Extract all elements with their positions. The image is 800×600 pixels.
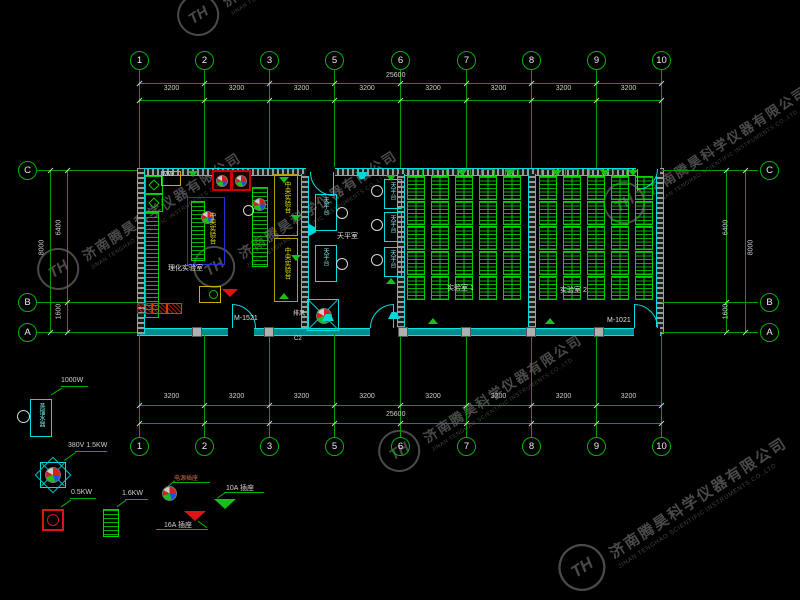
dim-label-top: 3200 <box>485 85 513 92</box>
bench-vertical-label: 中央实验台 <box>206 212 216 245</box>
dim-cb-left: 6400 <box>56 216 63 240</box>
dim-label-bottom: 3200 <box>419 393 447 400</box>
legend-distiller-knob <box>17 410 30 423</box>
leader-line <box>61 500 71 508</box>
axis-bubble-top-1: 1 <box>130 51 149 70</box>
student-bench-segment <box>431 176 449 200</box>
watermark-text: 济南腾昊科学仪器有限公司JINAN TENGHAO SCIENTIFIC INS… <box>604 430 796 570</box>
door-prep-top-arc <box>310 172 334 196</box>
dim-label-bottom: 3200 <box>615 393 643 400</box>
axis-bubble-bottom-3: 3 <box>260 437 279 456</box>
door-lab-bottom-leaf <box>232 304 233 328</box>
student-bench-segment <box>635 251 653 275</box>
legend-heater-symbol <box>103 509 119 537</box>
dim-label-bottom: 3200 <box>288 393 316 400</box>
dim-total-top: 25600 <box>386 72 405 79</box>
axis-bubble-left-A: A <box>18 323 37 342</box>
room-label-classroom1: 实验室 1 <box>447 283 474 293</box>
door-classroom2-bottom-arc <box>634 304 658 328</box>
legend-pump-symbol <box>42 509 64 531</box>
fan-wheel-icon <box>216 175 228 187</box>
axis-bubble-top-5: 5 <box>325 51 344 70</box>
axis-bubble-bottom-6: 6 <box>391 437 410 456</box>
wall-anchor <box>264 327 274 337</box>
exhaust-fan-box <box>307 299 339 331</box>
student-bench-segment <box>479 276 497 300</box>
leader-line <box>198 521 208 528</box>
leader-line <box>217 492 226 499</box>
stool <box>336 207 348 219</box>
student-bench-segment <box>503 251 521 275</box>
leader-line <box>64 452 76 461</box>
student-bench-segment <box>635 201 653 225</box>
door-tag-m1521: M-1521 <box>234 315 258 322</box>
lab-fume-fan <box>212 170 232 191</box>
axis-bubble-left-C: C <box>18 161 37 180</box>
legend-exhaust-fan-power: 380V 1.5KW <box>68 442 107 449</box>
watermark-en: JINAN TENGHAO SCIENTIFIC INSTRUMENTS CO.… <box>431 347 590 453</box>
student-bench-segment <box>539 251 557 275</box>
door-gap <box>228 327 254 336</box>
stool <box>243 205 254 216</box>
legend-10a-socket-symbol <box>214 499 236 509</box>
student-bench-segment <box>563 201 581 225</box>
leader-line <box>61 386 88 387</box>
student-bench-segment <box>587 276 605 300</box>
dim-line-seg-left <box>67 170 68 332</box>
room-label-lab: 理化实验室 <box>168 263 203 273</box>
bench-vertical-label: 天平台 <box>388 250 397 268</box>
student-bench-segment <box>587 176 605 200</box>
student-bench-segment <box>407 176 425 200</box>
cab-glyph <box>148 197 159 208</box>
company-logo-icon: TH <box>169 0 227 44</box>
lab-fume-fan <box>231 170 251 191</box>
dim-label-bottom: 3200 <box>158 393 186 400</box>
watermark-cn: 济南腾昊科学仪器有限公司 <box>644 81 800 199</box>
dim-label-bottom: 3200 <box>485 393 513 400</box>
lab-equipment-cart <box>199 286 221 303</box>
axis-bubble-left-B: B <box>18 293 37 312</box>
student-bench-segment <box>407 201 425 225</box>
student-bench-segment <box>611 251 629 275</box>
dim-line-total-left <box>50 170 51 332</box>
fan-wheel-icon <box>253 198 266 211</box>
socket-triangle <box>279 293 289 299</box>
watermark-text: 济南腾昊科学仪器有限公司JINAN TENGHAO SCIENTIFIC INS… <box>218 0 389 17</box>
door-prep-top-leaf <box>333 172 334 196</box>
axis-bubble-right-B: B <box>760 293 779 312</box>
machine-dial <box>209 290 218 299</box>
student-bench-segment <box>611 201 629 225</box>
legend-16a-socket-label: 16A 插座 <box>164 520 192 530</box>
student-bench-segment <box>503 201 521 225</box>
equipment-box <box>137 303 152 314</box>
axis-bubble-bottom-5: 5 <box>325 437 344 456</box>
dim-cb-right: 6400 <box>723 216 730 240</box>
axis-bubble-top-2: 2 <box>195 51 214 70</box>
watermark-cn: 济南腾昊科学仪器有限公司 <box>604 430 791 562</box>
axis-bubble-top-10: 10 <box>652 51 671 70</box>
axis-bubble-top-3: 3 <box>260 51 279 70</box>
student-bench-segment <box>503 276 521 300</box>
leader-line <box>172 482 210 483</box>
hood-tag-mw: MW <box>163 172 174 178</box>
socket-triangle <box>545 318 555 324</box>
exhaust-fan-tag: 排风 <box>293 308 305 317</box>
room-label-prep: 天平室 <box>337 231 358 241</box>
dim-label-top: 3200 <box>550 85 578 92</box>
student-bench-segment <box>611 176 629 200</box>
legend-power-socket-symbol <box>162 486 177 501</box>
stool <box>336 258 348 270</box>
wall-anchor <box>398 327 408 337</box>
axis-bubble-bottom-8: 8 <box>522 437 541 456</box>
student-bench-segment <box>563 251 581 275</box>
student-bench-segment <box>479 201 497 225</box>
dim-total-bottom: 25600 <box>386 411 405 418</box>
legend-pump-power: 0.5KW <box>71 489 92 496</box>
socket-triangle <box>505 170 515 176</box>
axis-bubble-top-8: 8 <box>522 51 541 70</box>
legend-power-socket-label: 电源插座 <box>174 473 198 482</box>
wall-anchor <box>461 327 471 337</box>
axis-bubble-bottom-10: 10 <box>652 437 671 456</box>
grid-line-horizontal <box>662 302 758 303</box>
bench-vertical-label: 天平台 <box>321 197 330 215</box>
student-bench-segment <box>407 226 425 250</box>
socket-triangle <box>552 170 562 176</box>
student-bench-segment <box>455 176 473 200</box>
wall-anchor <box>192 327 202 337</box>
lab-central-bench-top <box>191 201 205 261</box>
wall-anchor <box>594 327 604 337</box>
window-tag-c2: C2 <box>294 336 302 342</box>
watermark-cn: 济南腾昊科学仪器有限公司 <box>419 329 586 447</box>
student-bench-segment <box>407 276 425 300</box>
axis-bubble-bottom-2: 2 <box>195 437 214 456</box>
watermark-en: JINAN TENGHAO SCIENTIFIC INSTRUMENTS CO.… <box>617 451 795 570</box>
student-bench-segment <box>539 176 557 200</box>
dim-total-right: 8000 <box>748 236 755 260</box>
student-bench-segment <box>455 201 473 225</box>
student-bench-segment <box>455 251 473 275</box>
socket-triangle <box>457 170 467 176</box>
socket-triangle <box>291 215 301 221</box>
door-tag-m1021: M-1021 <box>607 317 631 324</box>
student-bench-segment <box>503 176 521 200</box>
bench-vertical-label: 中央实验台 <box>281 181 291 214</box>
bench-vertical-label: 天平台 <box>388 182 397 200</box>
stool <box>371 219 383 231</box>
door-classroom2-top-arc <box>637 169 658 190</box>
door-classroom2-top <box>637 169 658 190</box>
dim-label-top: 3200 <box>288 85 316 92</box>
grid-line-horizontal <box>36 302 137 303</box>
equipment-box <box>152 303 167 314</box>
company-watermark: TH济南腾昊科学仪器有限公司JINAN TENGHAO SCIENTIFIC I… <box>548 415 796 600</box>
student-bench-segment <box>635 226 653 250</box>
door-classroom2-bottom-leaf <box>634 304 635 328</box>
dim-label-top: 3200 <box>158 85 186 92</box>
socket-triangle <box>386 278 396 284</box>
axis-bubble-right-A: A <box>760 323 779 342</box>
legend-10a-socket-label: 10A 插座 <box>226 483 254 493</box>
student-bench-segment <box>431 201 449 225</box>
student-bench-segment <box>563 176 581 200</box>
cab-glyph <box>148 179 159 190</box>
student-bench-segment <box>407 251 425 275</box>
lab-cabinet <box>145 194 163 212</box>
dim-line-total-right <box>745 170 746 332</box>
room-label-classroom2: 实验室 2 <box>560 285 587 295</box>
student-bench-segment <box>587 251 605 275</box>
axis-bubble-bottom-9: 9 <box>587 437 606 456</box>
legend-16a-socket-symbol <box>184 511 206 521</box>
axis-bubble-bottom-7: 7 <box>457 437 476 456</box>
socket-triangle <box>600 170 610 176</box>
student-bench-segment <box>539 276 557 300</box>
leader-line <box>75 451 107 452</box>
watermark-en: JINAN TENGHAO SCIENTIFIC INSTRUMENTS CO.… <box>230 0 389 17</box>
socket-triangle <box>386 175 396 181</box>
student-bench-segment <box>479 176 497 200</box>
axis-bubble-right-C: C <box>760 161 779 180</box>
student-bench-segment <box>587 226 605 250</box>
leader-line <box>51 388 63 396</box>
student-bench-segment <box>587 201 605 225</box>
bench-vertical-label: 天平台 <box>321 248 330 266</box>
company-watermark: TH济南腾昊科学仪器有限公司JINAN TENGHAO SCIENTIFIC I… <box>168 0 389 44</box>
wall-classroom1-classroom2 <box>528 174 536 328</box>
dim-label-bottom: 3200 <box>223 393 251 400</box>
socket-triangle <box>188 171 198 177</box>
dim-label-bottom: 3200 <box>550 393 578 400</box>
dim-label-top: 3200 <box>223 85 251 92</box>
fan-wheel-icon <box>45 467 61 483</box>
axis-bubble-top-7: 7 <box>457 51 476 70</box>
fan-wheel-icon <box>235 175 247 187</box>
student-bench-segment <box>539 226 557 250</box>
student-bench-segment <box>479 251 497 275</box>
socket-triangle <box>291 255 301 261</box>
student-bench-segment <box>479 226 497 250</box>
watermark-text: 济南腾昊科学仪器有限公司JINAN TENGHAO SCIENTIFIC INS… <box>644 81 800 206</box>
student-bench-segment <box>611 226 629 250</box>
dim-total-left: 8000 <box>39 236 46 260</box>
door-gap <box>370 327 398 336</box>
pump-circle <box>47 514 59 526</box>
student-bench-segment <box>431 226 449 250</box>
legend-distiller-label: 蒸馏水器 <box>37 403 46 427</box>
dim-label-bottom: 3200 <box>353 393 381 400</box>
legend-distiller-power: 1000W <box>61 377 83 384</box>
bench-vertical-label: 中央实验台 <box>281 247 291 280</box>
dim-ba-left: 1600 <box>56 300 63 324</box>
leader-line <box>125 499 148 500</box>
socket-triangle <box>628 170 638 176</box>
bench-vertical-label: 天平台 <box>388 215 397 233</box>
student-bench-segment <box>539 201 557 225</box>
socket-triangle <box>428 318 438 324</box>
wall-anchor <box>526 327 536 337</box>
cad-floorplan-canvas: 蒸馏水器 1000W 380V 1.5KW 0.5KW 1.6KW 电源插座 1… <box>0 0 800 600</box>
axis-bubble-top-9: 9 <box>587 51 606 70</box>
legend-heater-power: 1.6KW <box>122 490 143 497</box>
student-bench-segment <box>563 226 581 250</box>
axis-bubble-top-6: 6 <box>391 51 410 70</box>
dim-label-top: 3200 <box>419 85 447 92</box>
student-bench-segment <box>635 276 653 300</box>
equipment-box <box>167 303 182 314</box>
door-gap <box>634 327 660 336</box>
student-bench-segment <box>503 226 521 250</box>
legend-distiller-symbol: 蒸馏水器 <box>30 399 52 437</box>
leader-line <box>117 500 127 507</box>
axis-bubble-bottom-1: 1 <box>130 437 149 456</box>
watermark-text: 济南腾昊科学仪器有限公司JINAN TENGHAO SCIENTIFIC INS… <box>419 329 590 454</box>
socket-triangle-16a <box>222 289 238 297</box>
door-classroom2-bottom <box>634 304 658 328</box>
dim-label-top: 3200 <box>353 85 381 92</box>
stool <box>371 185 383 197</box>
student-bench-segment <box>611 276 629 300</box>
dim-label-top: 3200 <box>615 85 643 92</box>
student-bench-segment <box>455 226 473 250</box>
leader-line <box>70 498 96 499</box>
student-bench-segment <box>431 251 449 275</box>
stool <box>371 254 383 266</box>
door-prep-top <box>310 172 334 196</box>
